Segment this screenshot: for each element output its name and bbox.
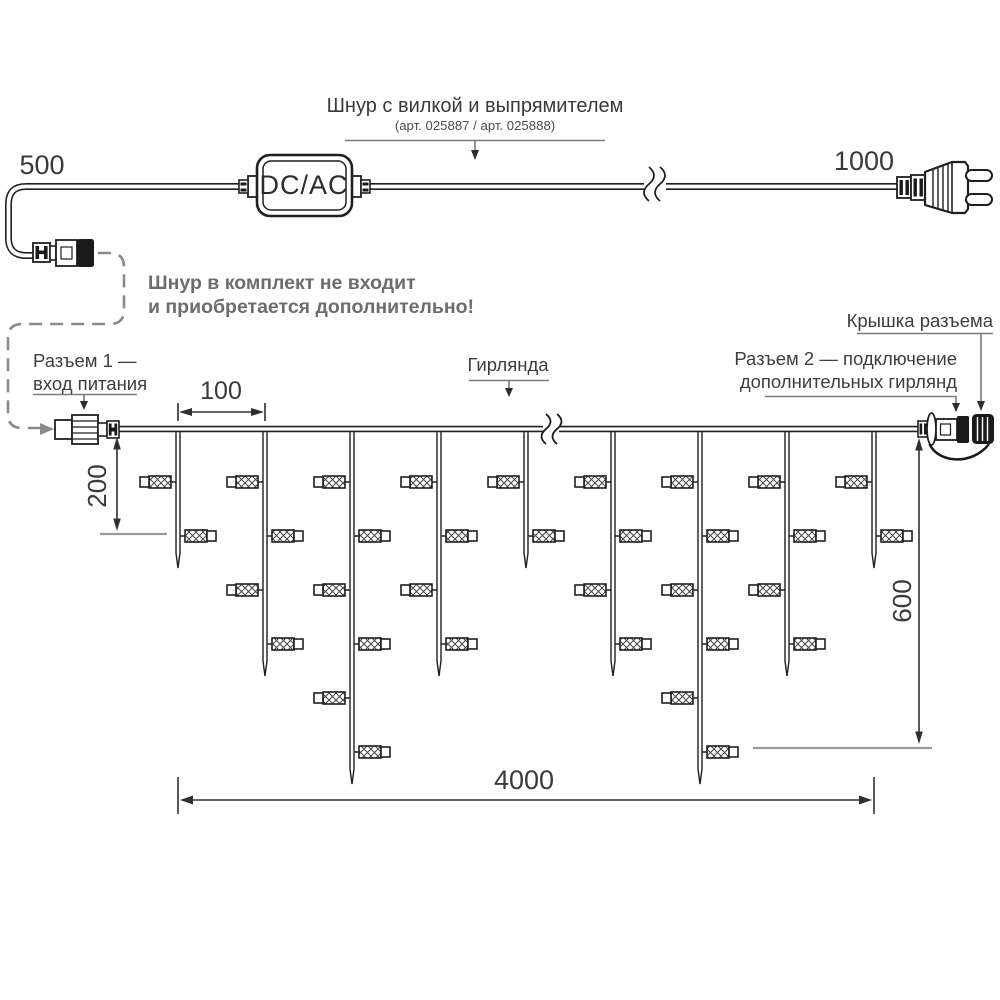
lamp-icon	[671, 692, 693, 704]
lamp-cap	[314, 477, 323, 487]
garland-drops	[140, 431, 912, 784]
lamp-cap	[642, 531, 651, 541]
lamp-icon	[272, 530, 294, 542]
lamp-icon	[236, 476, 258, 488]
lamp-cap	[729, 639, 738, 649]
lamp-icon	[758, 476, 780, 488]
cord-articles: (арт. 025887 / арт. 025888)	[395, 118, 555, 133]
garland-drop-short	[836, 431, 912, 568]
lamp-icon	[359, 746, 381, 758]
garland-drop-medium	[227, 431, 303, 676]
connector1-label-line2: вход питания	[33, 373, 147, 394]
garland-drop-medium	[749, 431, 825, 676]
dim-4000: 4000	[494, 765, 554, 795]
lamp-cap	[314, 693, 323, 703]
lamp-cap	[749, 477, 758, 487]
lamp-icon	[707, 530, 729, 542]
lamp-cap	[227, 585, 236, 595]
lamp-cap	[381, 639, 390, 649]
lamp-cap	[401, 585, 410, 595]
lamp-icon	[794, 530, 816, 542]
lamp-icon	[497, 476, 519, 488]
dim-600: 600	[887, 579, 917, 622]
lamp-icon	[707, 746, 729, 758]
connector-2	[918, 413, 994, 459]
dim-500: 500	[19, 150, 64, 180]
dim-100: 100	[200, 377, 242, 405]
connector-cap	[972, 414, 994, 444]
lamp-cap	[381, 747, 390, 757]
lamp-cap	[555, 531, 564, 541]
lamp-icon	[410, 476, 432, 488]
lamp-cap	[903, 531, 912, 541]
lamp-icon	[533, 530, 555, 542]
lamp-icon	[446, 530, 468, 542]
lamp-cap	[575, 585, 584, 595]
connector2-label-line2: дополнительных гирлянд	[740, 371, 957, 392]
lamp-cap	[575, 477, 584, 487]
lamp-cap	[468, 639, 477, 649]
lamp-cap	[662, 477, 671, 487]
lamp-cap	[381, 531, 390, 541]
text-layer: Шнур с вилкой и выпрямителем (арт. 02588…	[19, 95, 993, 795]
garland-drop-medium	[401, 431, 477, 676]
lamp-icon	[359, 638, 381, 650]
lamp-icon	[620, 530, 642, 542]
lamp-cap	[207, 531, 216, 541]
lamp-cap	[729, 531, 738, 541]
lamp-icon	[236, 584, 258, 596]
cord-right	[370, 167, 897, 201]
garland-wire	[118, 414, 918, 444]
lamp-icon	[584, 584, 606, 596]
lamp-cap	[140, 477, 149, 487]
lamp-icon	[671, 476, 693, 488]
cap-strap	[930, 444, 990, 459]
lamp-icon	[323, 692, 345, 704]
garland-drop-medium	[575, 431, 651, 676]
cord-break-icon	[644, 167, 665, 201]
lamp-icon	[323, 584, 345, 596]
lamp-cap	[488, 477, 497, 487]
lamp-icon	[359, 530, 381, 542]
garland-drop-long	[314, 431, 390, 784]
lamp-cap	[662, 585, 671, 595]
connector-black-cap	[77, 239, 94, 267]
cord-end-connector	[33, 239, 94, 267]
lamp-cap	[227, 477, 236, 487]
garland-label: Гирлянда	[467, 354, 549, 375]
cap-label: Крышка разъема	[847, 310, 994, 331]
lamp-icon	[845, 476, 867, 488]
connector1-label-line1: Разъем 1 —	[33, 350, 137, 371]
dim-200: 200	[82, 464, 112, 507]
lamp-icon	[671, 584, 693, 596]
lamp-icon	[446, 638, 468, 650]
lamp-icon	[707, 638, 729, 650]
garland-diagram: DC/AC	[0, 0, 1000, 1000]
not-included-dashed-path	[8, 253, 124, 435]
lamp-cap	[662, 693, 671, 703]
garland-drop-short	[488, 431, 564, 568]
dcac-converter-box: DC/AC	[239, 155, 370, 216]
garland-drop-short	[140, 431, 216, 568]
lamp-icon	[149, 476, 171, 488]
lamp-cap	[816, 531, 825, 541]
lamp-cap	[294, 639, 303, 649]
lamp-icon	[758, 584, 780, 596]
lamp-cap	[401, 477, 410, 487]
converter-label: DC/AC	[259, 170, 348, 200]
lamp-icon	[272, 638, 294, 650]
lamp-cap	[314, 585, 323, 595]
dim-1000: 1000	[834, 146, 894, 176]
note-line1: Шнур в комплект не входит	[148, 272, 416, 294]
connector2-label-line1: Разъем 2 — подключение	[734, 348, 957, 369]
lamp-icon	[881, 530, 903, 542]
lamp-icon	[584, 476, 606, 488]
lamp-icon	[794, 638, 816, 650]
dimension-lines	[117, 403, 919, 814]
lamp-cap	[468, 531, 477, 541]
lamp-cap	[294, 531, 303, 541]
connector-1	[55, 415, 119, 444]
lamp-icon	[323, 476, 345, 488]
lamp-cap	[836, 477, 845, 487]
dimension-arrowheads	[113, 408, 923, 805]
euro-plug-icon	[897, 162, 992, 213]
lamp-cap	[642, 639, 651, 649]
lamp-icon	[185, 530, 207, 542]
note-line2: и приобретается дополнительно!	[148, 296, 474, 318]
lamp-cap	[749, 585, 758, 595]
lamp-cap	[729, 747, 738, 757]
diagram-canvas: DC/AC	[0, 0, 1000, 1000]
dashed-arrowhead-icon	[40, 423, 54, 435]
lamp-cap	[816, 639, 825, 649]
wire-break-icon	[542, 414, 562, 444]
garland-drop-long	[662, 431, 738, 784]
plug-pin	[966, 170, 992, 181]
plug-pin	[966, 194, 992, 205]
lamp-icon	[410, 584, 432, 596]
cord-title: Шнур с вилкой и выпрямителем	[327, 95, 624, 117]
lamp-icon	[620, 638, 642, 650]
